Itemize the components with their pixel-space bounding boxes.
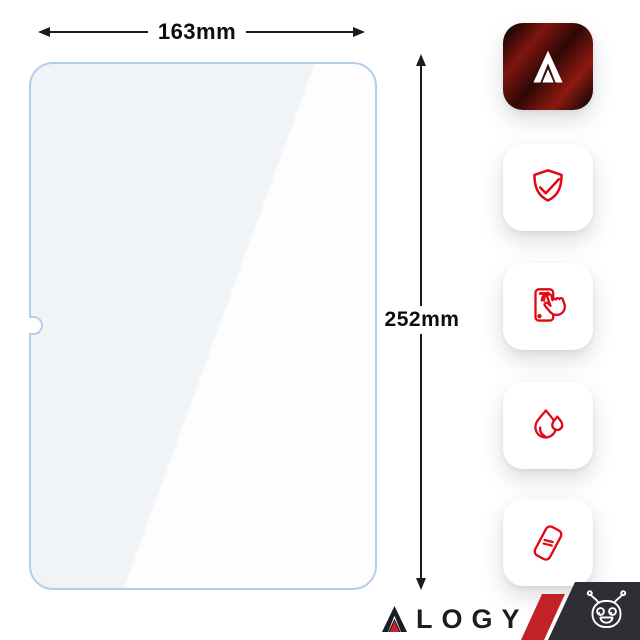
height-dimension-label: 252mm bbox=[383, 306, 461, 334]
touch-screen-tile bbox=[503, 263, 593, 350]
alogy-wordmark-text: LOGY bbox=[416, 606, 529, 632]
alogy-a-glyph bbox=[382, 606, 407, 632]
alogy-wordmark: LOGY bbox=[382, 606, 529, 632]
arrowhead-left-icon bbox=[38, 27, 50, 37]
robot-mascot-icon bbox=[583, 589, 630, 634]
water-drop-tile bbox=[503, 382, 593, 469]
water-drop-icon bbox=[523, 401, 573, 451]
product-image-canvas: { "dimensions": { "width_label": "163mm"… bbox=[0, 0, 640, 640]
protector-film-tile bbox=[503, 499, 593, 586]
arrowhead-down-icon bbox=[416, 578, 426, 590]
camera-notch bbox=[29, 316, 43, 335]
touch-screen-icon bbox=[523, 282, 573, 332]
alogy-logo-tile bbox=[503, 23, 593, 110]
arrowhead-right-icon bbox=[353, 27, 365, 37]
protector-film-icon bbox=[523, 518, 573, 568]
alogy-logo-icon bbox=[526, 46, 570, 88]
arrowhead-up-icon bbox=[416, 54, 426, 66]
tempered-glass-protector bbox=[29, 62, 377, 590]
shield-check-tile bbox=[503, 144, 593, 231]
width-dimension-label: 163mm bbox=[148, 19, 246, 45]
shield-check-icon bbox=[523, 163, 573, 213]
